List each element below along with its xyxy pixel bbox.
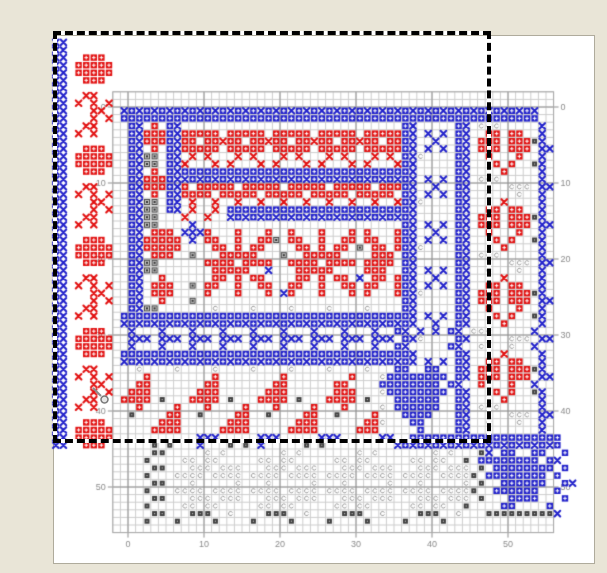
marching-ants-border bbox=[53, 31, 491, 443]
pattern-editor-window bbox=[0, 0, 607, 573]
selection-marquee[interactable] bbox=[55, 33, 489, 441]
